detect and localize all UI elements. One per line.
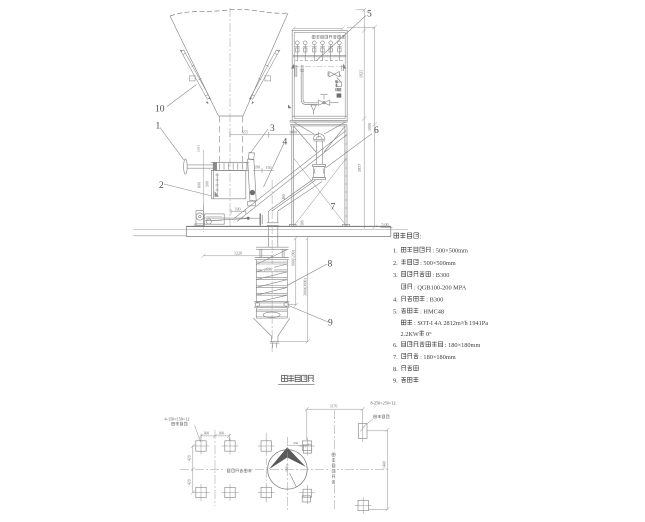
svg-text:300: 300 [204, 431, 210, 435]
svg-text:1: 1 [156, 122, 161, 132]
svg-text:400: 400 [282, 194, 286, 200]
svg-text:380: 380 [301, 220, 305, 226]
svg-text:8: 8 [328, 260, 333, 270]
svg-text:7.: 7. [393, 354, 398, 361]
svg-text:: 180×180mm: : 180×180mm [445, 342, 481, 349]
svg-text:300: 300 [219, 431, 225, 435]
svg-text:190: 190 [254, 165, 260, 170]
svg-text:4: 4 [283, 138, 288, 148]
svg-text:: 500×500mm: : 500×500mm [432, 248, 468, 255]
svg-text:1170: 1170 [330, 405, 338, 409]
svg-text:2: 2 [159, 181, 164, 191]
svg-text:φ600: φ600 [264, 267, 274, 272]
svg-text:1925: 1925 [358, 70, 363, 78]
svg-text:6: 6 [374, 126, 379, 136]
svg-text:3.: 3. [393, 272, 398, 279]
svg-text:430: 430 [293, 441, 299, 445]
svg-text:5: 5 [367, 10, 372, 20]
svg-text:: 500×500mm: : 500×500mm [420, 260, 456, 267]
svg-text:: SOT-I 4A 2812m³/h 1941Pa: : SOT-I 4A 2812m³/h 1941Pa [414, 320, 488, 327]
svg-text:1440: 1440 [383, 461, 387, 469]
svg-text:420: 420 [187, 479, 191, 485]
svg-text:: B300: : B300 [432, 272, 449, 279]
svg-text:1000: 1000 [367, 123, 372, 131]
svg-text:10: 10 [155, 105, 165, 115]
svg-text:8-250×250×12: 8-250×250×12 [371, 401, 396, 406]
svg-text:: 180×180mm: : 180×180mm [420, 354, 456, 361]
svg-text:1291: 1291 [197, 145, 201, 152]
svg-text:6.: 6. [393, 342, 398, 349]
svg-text::: : [420, 234, 422, 241]
svg-text:900(1200): 900(1200) [292, 249, 296, 266]
svg-text:3937: 3937 [357, 164, 362, 172]
svg-text:: HMC48: : HMC48 [420, 308, 444, 315]
svg-text:9: 9 [328, 319, 333, 329]
svg-text:150: 150 [266, 165, 272, 170]
svg-text:4-150×150×12: 4-150×150×12 [165, 416, 190, 421]
svg-text:2.: 2. [393, 260, 398, 267]
svg-text:5.: 5. [393, 308, 398, 315]
svg-text:420: 420 [187, 455, 191, 461]
svg-text:9.: 9. [393, 378, 398, 385]
svg-text:5.00: 5.00 [382, 222, 389, 227]
svg-text:1.: 1. [393, 248, 398, 255]
svg-text:7: 7 [331, 203, 336, 213]
svg-text:0°: 0° [426, 331, 432, 338]
svg-text:1220: 1220 [234, 251, 242, 256]
svg-text:: B300: : B300 [426, 297, 443, 304]
svg-text:1000: 1000 [289, 130, 297, 135]
svg-text:3000(3600): 3000(3600) [303, 278, 307, 296]
svg-text:500: 500 [204, 181, 209, 187]
svg-text:: QGB100-200 MPA: : QGB100-200 MPA [414, 284, 467, 291]
svg-text:600: 600 [197, 182, 202, 188]
svg-text:330: 330 [235, 207, 241, 212]
svg-text:655: 655 [242, 130, 248, 135]
svg-text:8.: 8. [393, 366, 398, 373]
svg-text:2.2KW: 2.2KW [401, 331, 419, 338]
svg-text:3: 3 [270, 124, 275, 134]
svg-text:4.: 4. [393, 297, 398, 304]
